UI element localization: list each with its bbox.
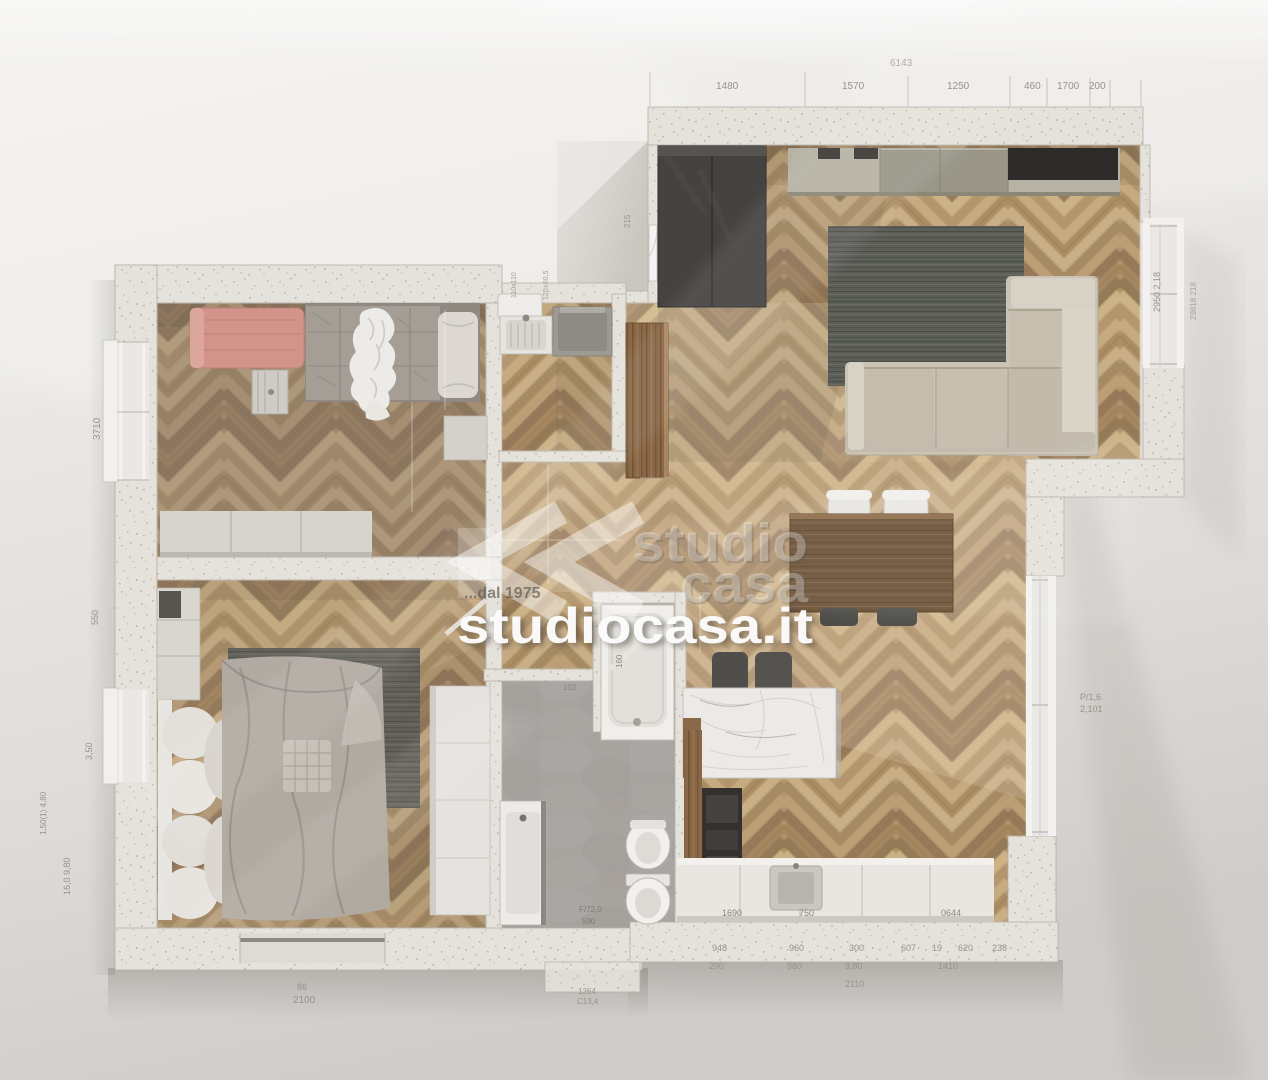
svg-text:1250: 1250 xyxy=(947,81,970,92)
svg-text:1700: 1700 xyxy=(1057,81,1080,92)
svg-text:120+60,5: 120+60,5 xyxy=(543,271,550,300)
svg-text:studiocasa.it: studiocasa.it xyxy=(457,598,813,654)
svg-text:16,0 9,80: 16,0 9,80 xyxy=(62,857,72,895)
svg-text:200: 200 xyxy=(1089,81,1106,92)
svg-text:300: 300 xyxy=(849,943,864,953)
svg-text:215: 215 xyxy=(623,214,632,228)
svg-text:1264: 1264 xyxy=(578,987,596,996)
svg-text:29818 218: 29818 218 xyxy=(1189,282,1198,320)
svg-text:620: 620 xyxy=(958,943,973,953)
svg-text:2,101: 2,101 xyxy=(1080,704,1103,714)
svg-text:550: 550 xyxy=(90,610,100,625)
svg-text:2100: 2100 xyxy=(293,995,316,1006)
svg-text:290: 290 xyxy=(709,961,724,971)
svg-text:750: 750 xyxy=(799,908,814,918)
svg-text:86: 86 xyxy=(297,982,307,992)
svg-text:9,80: 9,80 xyxy=(845,961,863,971)
svg-text:3,50: 3,50 xyxy=(84,742,94,760)
svg-text:960: 960 xyxy=(789,943,804,953)
svg-text:3710: 3710 xyxy=(92,417,103,440)
svg-text:1410: 1410 xyxy=(938,961,958,971)
svg-text:2110: 2110 xyxy=(845,979,864,989)
svg-text:238: 238 xyxy=(992,943,1007,953)
svg-text:C13,4: C13,4 xyxy=(577,997,599,1006)
svg-text:948: 948 xyxy=(712,943,727,953)
svg-text:6143: 6143 xyxy=(890,58,913,69)
svg-text:19: 19 xyxy=(932,943,942,953)
svg-text:980: 980 xyxy=(787,961,802,971)
svg-text:1,50(1) 4,80: 1,50(1) 4,80 xyxy=(39,791,48,835)
svg-text:110x110: 110x110 xyxy=(511,272,518,298)
svg-text:2950 2,18: 2950 2,18 xyxy=(1152,272,1162,312)
svg-text:607: 607 xyxy=(901,943,916,953)
svg-text:1690: 1690 xyxy=(722,908,742,918)
svg-text:1570: 1570 xyxy=(842,81,865,92)
svg-text:102: 102 xyxy=(563,683,577,692)
svg-text:0644: 0644 xyxy=(941,908,961,918)
svg-text:460: 460 xyxy=(1024,81,1041,92)
svg-text:P/1,6: P/1,6 xyxy=(1080,692,1101,702)
svg-text:590: 590 xyxy=(582,917,596,926)
svg-text:F/72,0: F/72,0 xyxy=(579,905,602,914)
svg-text:1480: 1480 xyxy=(716,81,739,92)
